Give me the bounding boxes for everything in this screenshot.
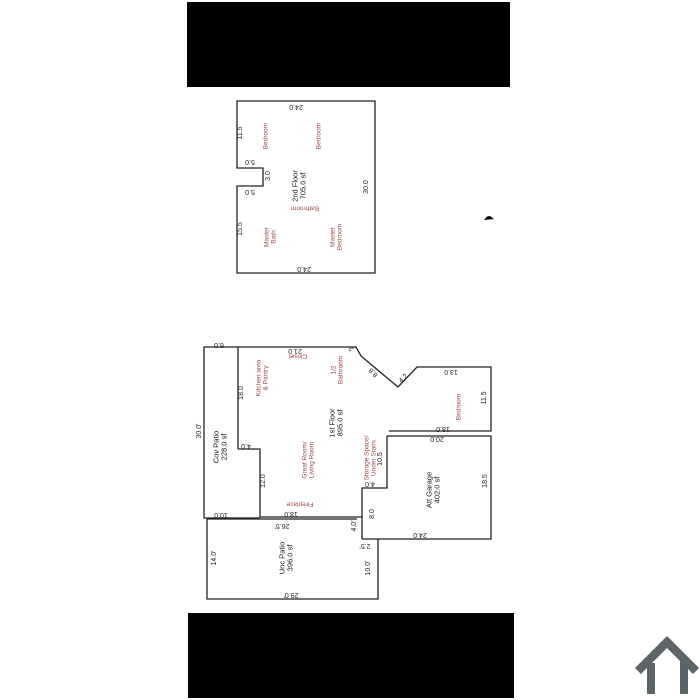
first-floor-lower-wall [238,449,362,517]
first-floor-outline [238,347,491,449]
second-floor-outline [237,101,375,273]
unc-patio-outline [207,519,378,599]
house-logo-icon [630,630,700,700]
cov-patio-outline [204,347,260,518]
floorplan-walls [0,0,700,700]
floorplan-page: 24.011.55.03.05.015.524.030.0BedroomBedr… [0,0,700,700]
storage-wall [362,436,387,539]
mouse-cursor-icon [483,212,497,222]
